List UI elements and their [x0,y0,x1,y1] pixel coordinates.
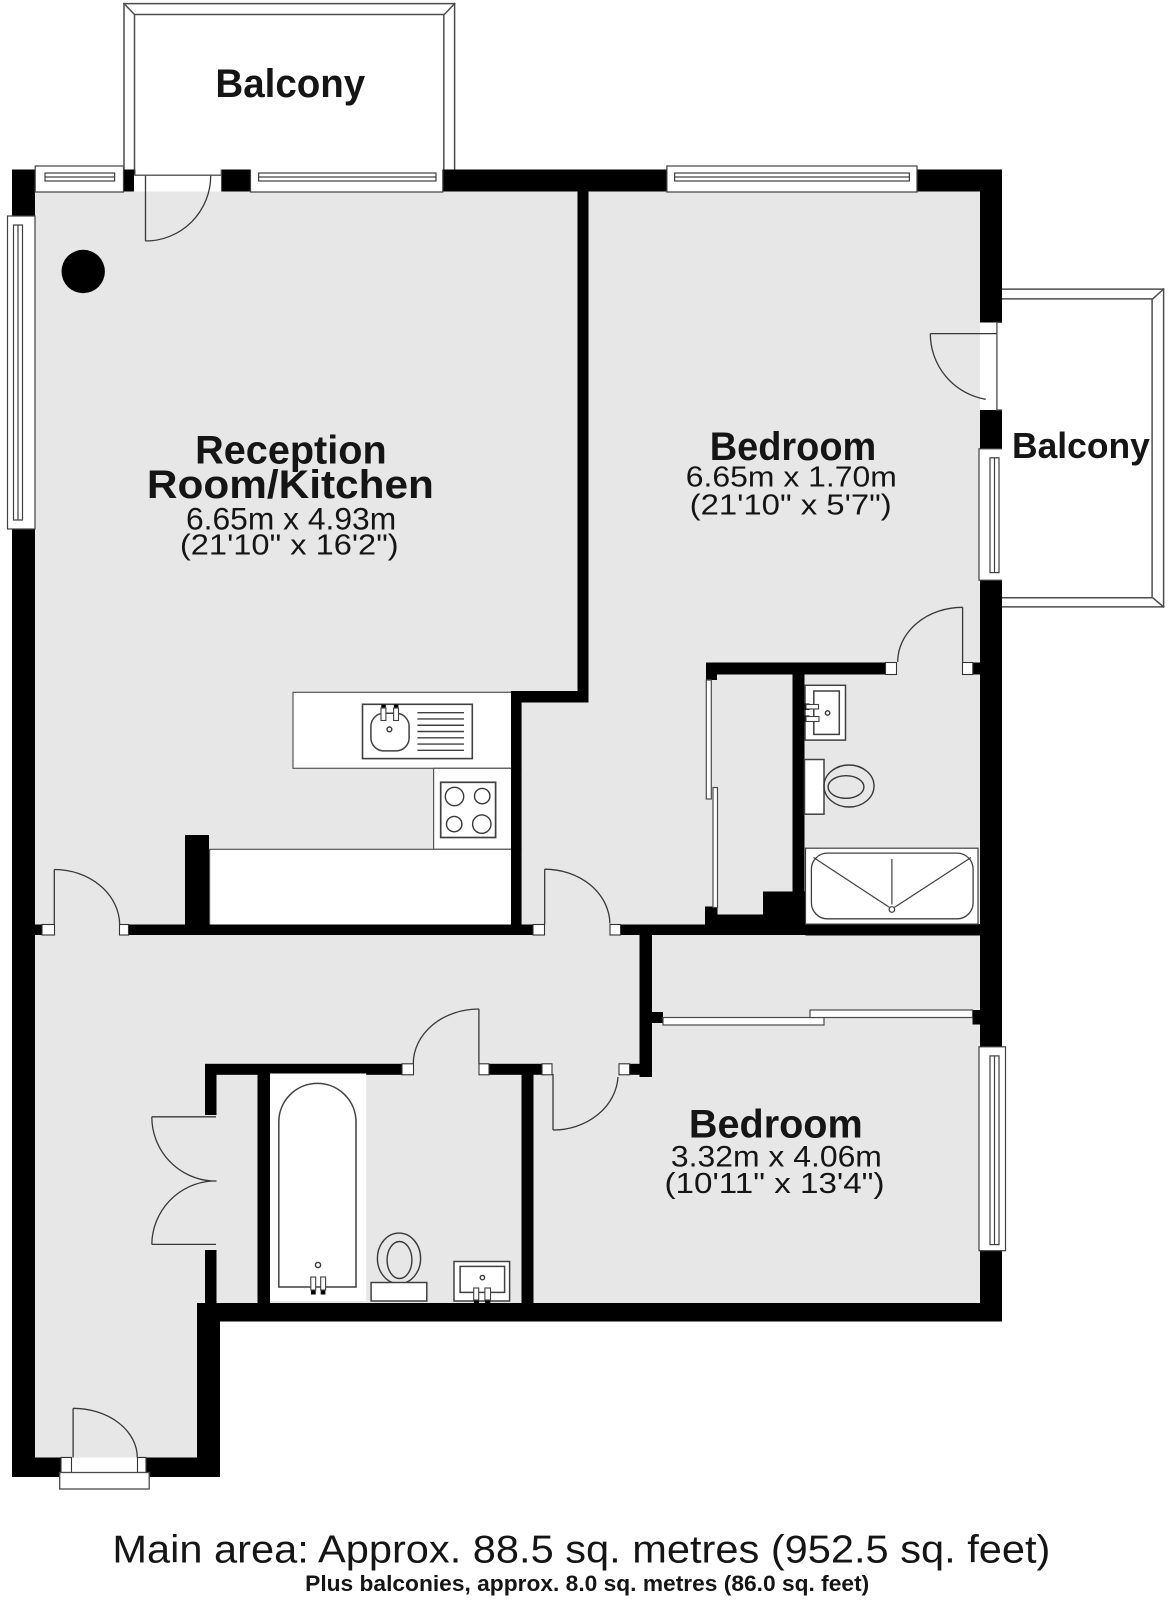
svg-text:Balcony: Balcony [215,62,366,106]
svg-text:(10'11" x 13'4"): (10'11" x 13'4") [665,1168,885,1200]
svg-text:Plus balconies, approx. 8.0 sq: Plus balconies, approx. 8.0 sq. metres (… [305,1571,869,1596]
svg-text:Main area: Approx. 88.5 sq. me: Main area: Approx. 88.5 sq. metres (952.… [112,1529,1050,1572]
svg-text:Balcony: Balcony [1012,425,1150,466]
svg-text:(21'10" x 16'2"): (21'10" x 16'2") [180,529,399,561]
svg-text:(21'10" x 5'7"): (21'10" x 5'7") [690,490,892,522]
